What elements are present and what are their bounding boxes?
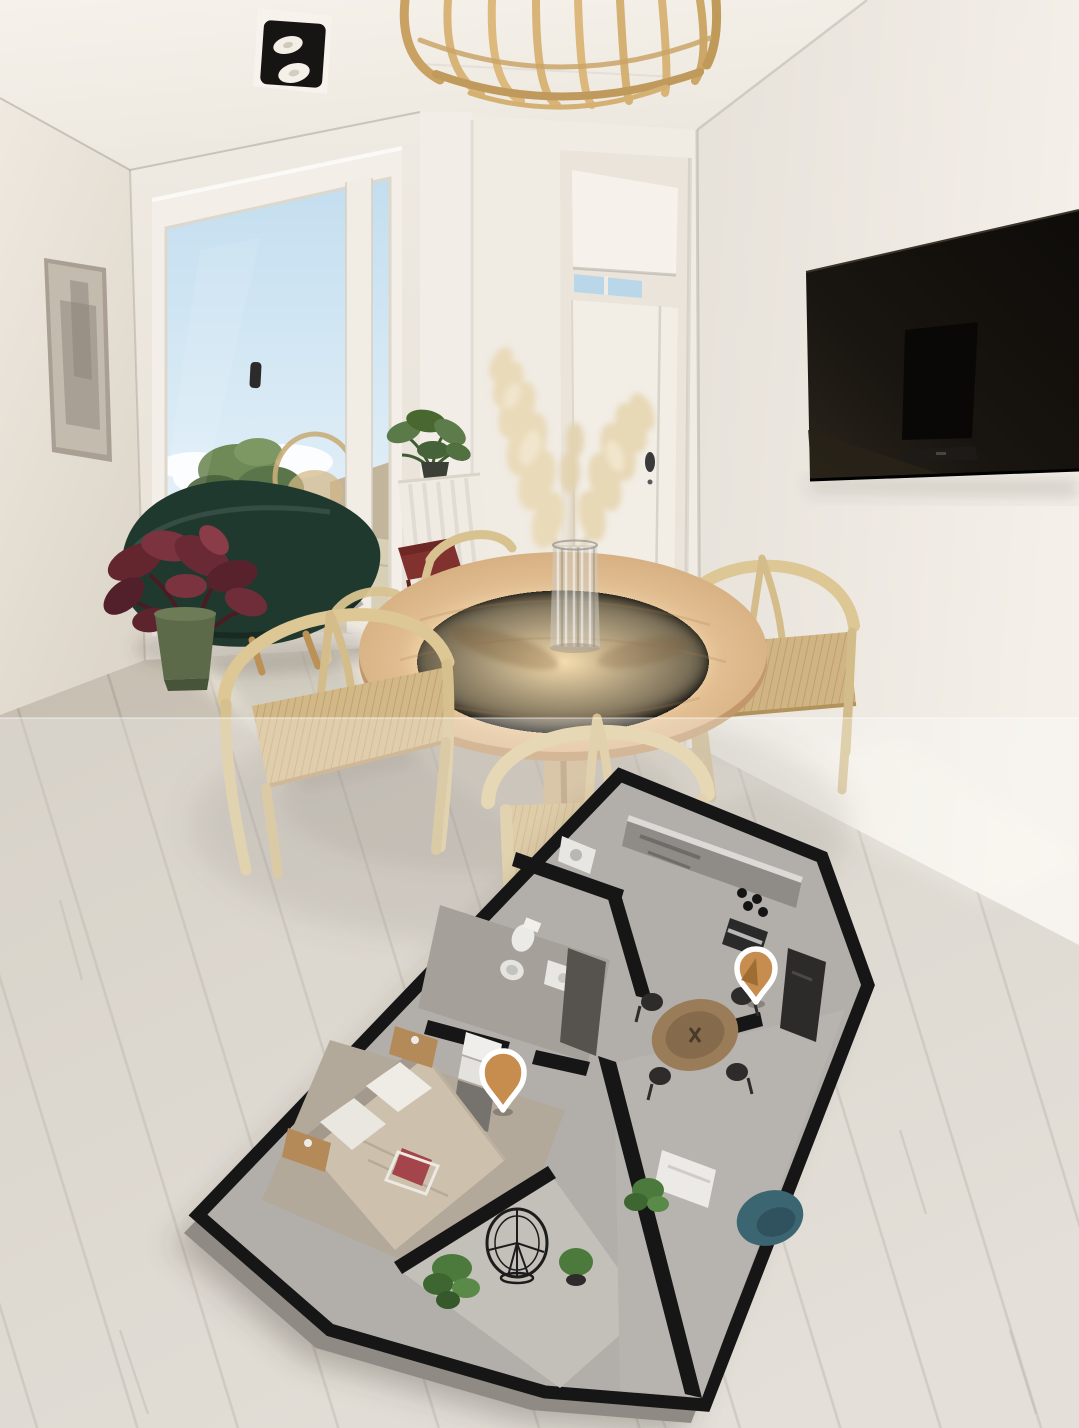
nook-cabinet	[572, 170, 678, 275]
plant-pot	[155, 612, 216, 680]
door-handle	[249, 362, 261, 389]
tv-reflection	[902, 322, 978, 440]
property-viewer-canvas	[0, 0, 1079, 1428]
ceiling-spotlight	[253, 8, 332, 94]
interior-door-handle	[645, 452, 655, 472]
glass-vase	[550, 541, 600, 654]
wall-artwork	[44, 258, 112, 462]
